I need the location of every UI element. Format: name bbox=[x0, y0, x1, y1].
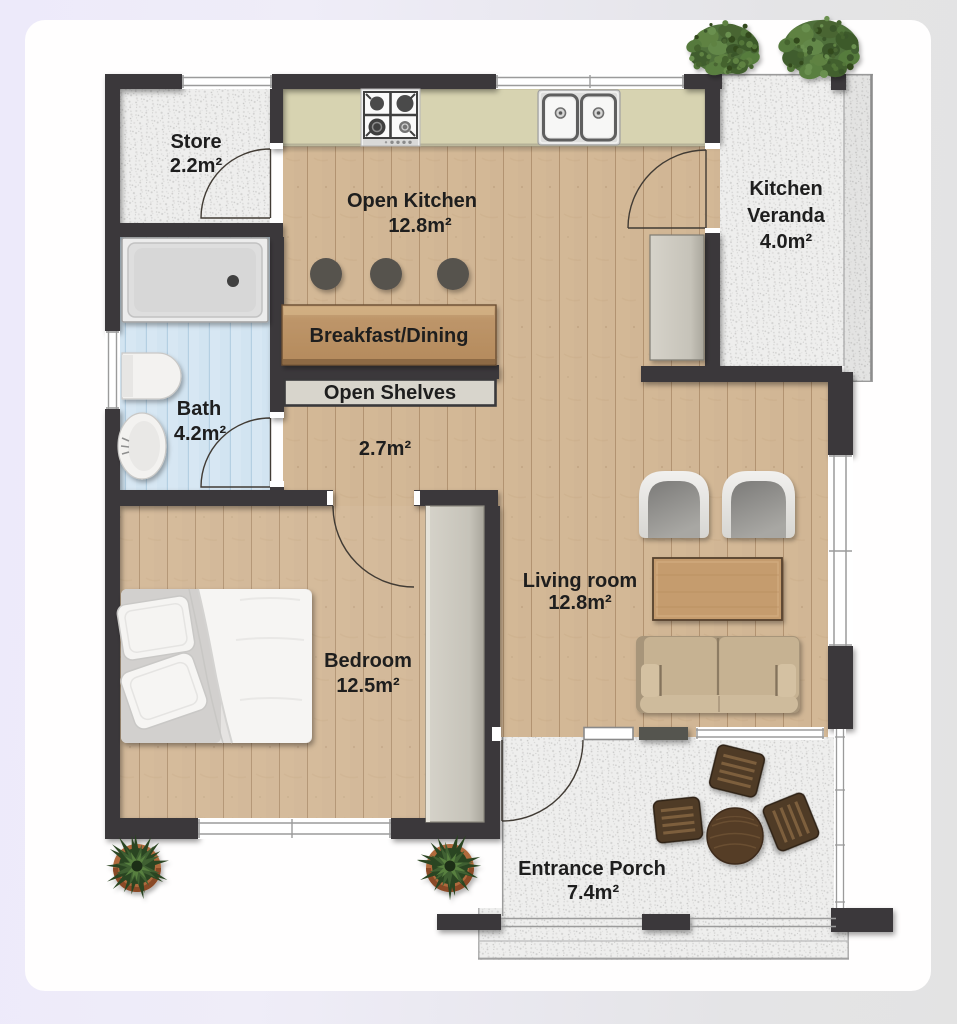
svg-text:2.2m²: 2.2m² bbox=[170, 155, 223, 177]
svg-text:4.2m²: 4.2m² bbox=[174, 423, 227, 445]
svg-text:Store: Store bbox=[170, 131, 221, 153]
svg-text:Bath: Bath bbox=[177, 398, 221, 420]
svg-text:Breakfast/Dining: Breakfast/Dining bbox=[310, 325, 469, 347]
svg-text:Open Kitchen: Open Kitchen bbox=[347, 190, 477, 212]
svg-text:Kitchen: Kitchen bbox=[749, 178, 822, 200]
svg-text:7.4m²: 7.4m² bbox=[567, 882, 620, 904]
svg-text:Bedroom: Bedroom bbox=[324, 650, 412, 672]
svg-text:Entrance Porch: Entrance Porch bbox=[518, 858, 666, 880]
svg-text:12.8m²: 12.8m² bbox=[388, 215, 452, 237]
svg-text:12.5m²: 12.5m² bbox=[336, 675, 400, 697]
svg-text:2.7m²: 2.7m² bbox=[359, 438, 412, 460]
svg-text:4.0m²: 4.0m² bbox=[760, 231, 813, 253]
svg-text:Open Shelves: Open Shelves bbox=[324, 382, 456, 404]
svg-text:Living room: Living room bbox=[523, 570, 637, 592]
svg-text:Veranda: Veranda bbox=[747, 205, 826, 227]
svg-text:12.8m²: 12.8m² bbox=[548, 592, 612, 614]
